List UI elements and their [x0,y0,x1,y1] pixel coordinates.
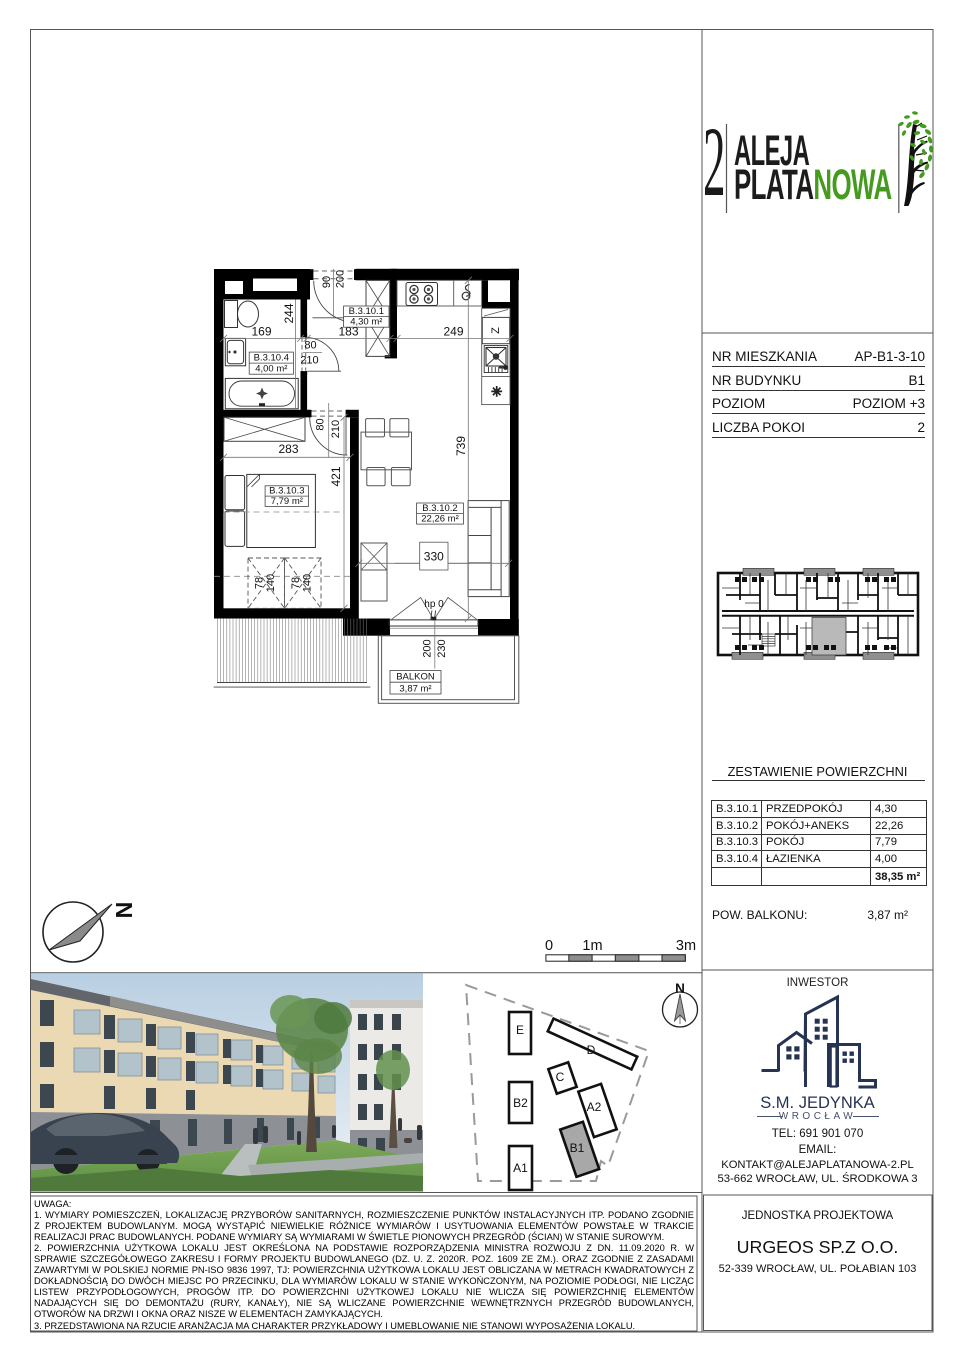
svg-text:78: 78 [253,577,265,589]
svg-text:330: 330 [424,550,444,564]
svg-text:C: C [556,1070,565,1084]
svg-text:90: 90 [321,276,333,288]
svg-text:N: N [675,981,685,996]
svg-text:80: 80 [315,418,327,430]
svg-text:80: 80 [304,339,316,351]
svg-text:4,00 m²: 4,00 m² [255,363,287,374]
svg-text:3m: 3m [676,938,696,954]
svg-text:4,30 m²: 4,30 m² [350,317,382,328]
svg-text:B.3.10.2: B.3.10.2 [422,503,457,514]
svg-text:B.3.10.4: B.3.10.4 [254,352,289,363]
svg-text:1m: 1m [582,938,602,954]
svg-text:7,79 m²: 7,79 m² [271,496,303,507]
svg-text:140: 140 [301,574,313,592]
svg-text:22,26 m²: 22,26 m² [421,514,459,525]
svg-text:249: 249 [443,325,463,339]
svg-text:230: 230 [436,639,448,657]
svg-text:0: 0 [545,938,553,954]
svg-text:169: 169 [251,325,271,339]
svg-text:140: 140 [265,574,277,592]
svg-text:3,87 m²: 3,87 m² [399,683,431,694]
svg-text:78: 78 [290,577,302,589]
svg-text:B1: B1 [570,1141,585,1155]
svg-text:244: 244 [282,303,296,323]
svg-text:E: E [516,1023,524,1037]
svg-text:283: 283 [278,442,298,456]
svg-text:N: N [111,902,137,919]
svg-text:210: 210 [330,420,342,438]
svg-text:200: 200 [335,270,347,288]
svg-text:D: D [587,1043,596,1057]
svg-text:739: 739 [454,436,468,456]
svg-text:A1: A1 [513,1161,528,1175]
svg-text:BALKON: BALKON [396,672,435,683]
svg-text:421: 421 [329,466,343,486]
svg-text:200: 200 [422,639,434,657]
svg-text:210: 210 [300,354,318,366]
svg-text:B.3.10.1: B.3.10.1 [349,306,384,317]
svg-text:B2: B2 [513,1096,528,1110]
svg-text:A2: A2 [587,1100,602,1114]
svg-text:Z: Z [490,327,502,334]
svg-text:hp 0: hp 0 [424,599,444,610]
